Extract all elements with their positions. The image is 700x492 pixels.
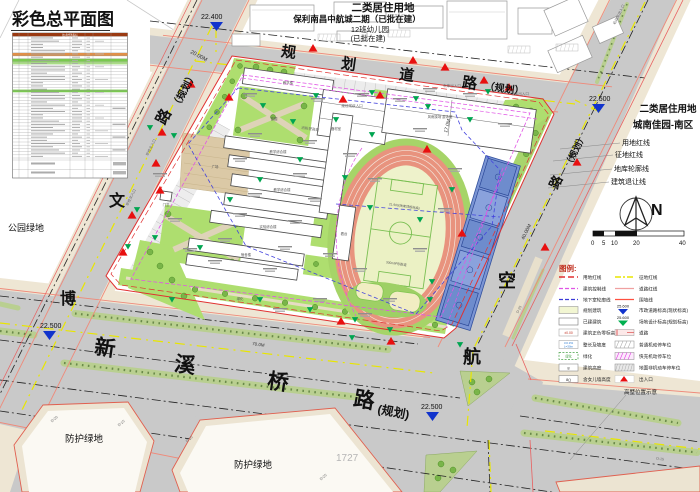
svg-text:航: 航 <box>463 346 481 367</box>
svg-text:彩色总平面图: 彩色总平面图 <box>11 9 114 29</box>
svg-text:围墙线: 围墙线 <box>639 297 653 304</box>
svg-text:公园绿地: 公园绿地 <box>8 222 44 233</box>
svg-text:25.600: 25.600 <box>617 304 630 309</box>
svg-text:规划建筑: 规划建筑 <box>583 307 602 314</box>
svg-text:8(): 8() <box>566 377 572 382</box>
svg-text:二类居住用地: 二类居住用地 <box>639 103 697 115</box>
svg-text:已建建筑: 已建建筑 <box>583 319 602 326</box>
svg-text:风雨操场 游泳馆: 风雨操场 游泳馆 <box>428 114 453 119</box>
svg-text:空: 空 <box>498 270 516 291</box>
svg-text:博: 博 <box>60 289 76 308</box>
svg-text:道: 道 <box>398 65 415 85</box>
svg-text:规划残疾人口: 规划残疾人口 <box>341 103 363 108</box>
svg-text:宿舍楼: 宿舍楼 <box>241 252 252 257</box>
svg-text:教学综合楼: 教学综合楼 <box>270 149 288 154</box>
svg-text:规: 规 <box>280 43 297 62</box>
svg-text:苗圃: 苗圃 <box>271 116 278 121</box>
svg-text:20: 20 <box>633 241 640 247</box>
svg-text:出入口: 出入口 <box>639 376 653 383</box>
svg-text:25.600: 25.600 <box>617 315 630 320</box>
svg-text:广场: 广场 <box>212 164 219 169</box>
svg-text:±0.00: ±0.00 <box>564 331 573 335</box>
svg-text:征地红线: 征地红线 <box>615 150 643 159</box>
svg-text:整长及坡度: 整长及坡度 <box>583 342 606 349</box>
svg-text:小区主入口: 小区主入口 <box>387 13 405 18</box>
svg-text:城南佳园-南区: 城南佳园-南区 <box>633 119 694 131</box>
svg-text:器材室: 器材室 <box>331 126 342 131</box>
svg-text:图例:: 图例: <box>559 263 577 273</box>
svg-text:12班幼儿园: 12班幼儿园 <box>351 24 389 34</box>
svg-text:征地红线: 征地红线 <box>639 274 658 281</box>
svg-text:22.400: 22.400 <box>201 14 223 21</box>
svg-text:建筑正负零标高: 建筑正负零标高 <box>583 330 616 337</box>
svg-text:10: 10 <box>611 241 618 247</box>
svg-text:地下室轮廓线: 地下室轮廓线 <box>583 297 611 304</box>
svg-text:建筑高度: 建筑高度 <box>583 365 602 372</box>
svg-text:建筑退让线: 建筑退让线 <box>611 177 646 186</box>
svg-text:车库出入口: 车库出入口 <box>511 91 529 96</box>
svg-text:高墅位置示意: 高墅位置示意 <box>624 388 658 396</box>
svg-text:快充机动停车位: 快充机动停车位 <box>639 353 672 360</box>
svg-text:车库出入口: 车库出入口 <box>443 83 461 88</box>
svg-text:(已批在建): (已批在建) <box>351 33 386 43</box>
svg-text:建筑控制线: 建筑控制线 <box>583 286 606 293</box>
svg-text:划: 划 <box>340 54 357 74</box>
svg-text:教学综合楼: 教学综合楼 <box>274 187 292 192</box>
svg-text:绿化: 绿化 <box>583 353 593 360</box>
svg-text:22.500: 22.500 <box>589 96 611 103</box>
svg-text:市政道路标高(现状标高): 市政道路标高(现状标高) <box>639 307 688 314</box>
svg-text:用地红线: 用地红线 <box>583 274 602 281</box>
svg-text:普通机动停车位: 普通机动停车位 <box>639 342 672 349</box>
svg-text:溪: 溪 <box>173 353 198 379</box>
svg-text:实验综合楼: 实验综合楼 <box>260 224 278 229</box>
svg-text:二类居住用地: 二类居住用地 <box>352 1 415 14</box>
svg-text:技术经济指标: 技术经济指标 <box>62 33 78 37</box>
svg-text:道路红线: 道路红线 <box>639 286 658 293</box>
svg-text:N: N <box>651 202 663 219</box>
svg-text:绿化: 绿化 <box>565 354 572 359</box>
svg-text:门卫: 门卫 <box>163 202 170 207</box>
svg-text:防护绿地: 防护绿地 <box>65 433 104 445</box>
svg-text:40: 40 <box>679 241 686 247</box>
svg-text:22.500: 22.500 <box>421 404 443 411</box>
svg-text:道路: 道路 <box>639 330 649 337</box>
svg-text:地库轮廓线: 地库轮廓线 <box>614 164 649 173</box>
svg-text:1727: 1727 <box>336 453 359 464</box>
svg-text:新: 新 <box>93 335 117 362</box>
svg-text:用地红线: 用地红线 <box>622 138 650 147</box>
svg-text:22.500: 22.500 <box>40 323 62 330</box>
svg-text:教学楼: 教学楼 <box>283 80 294 85</box>
svg-text:场地设计标高(规划标高): 场地设计标高(规划标高) <box>639 319 688 326</box>
svg-text:绿化: 绿化 <box>237 296 244 301</box>
svg-text:防护绿地: 防护绿地 <box>234 459 273 471</box>
svg-text:地面非机动车停车位: 地面非机动车停车位 <box>639 365 681 372</box>
svg-text:文: 文 <box>109 191 126 210</box>
svg-text:含女儿墙高度: 含女儿墙高度 <box>583 376 611 383</box>
svg-text:L=30m: L=30m <box>564 345 574 349</box>
svg-text:看台: 看台 <box>341 231 348 236</box>
